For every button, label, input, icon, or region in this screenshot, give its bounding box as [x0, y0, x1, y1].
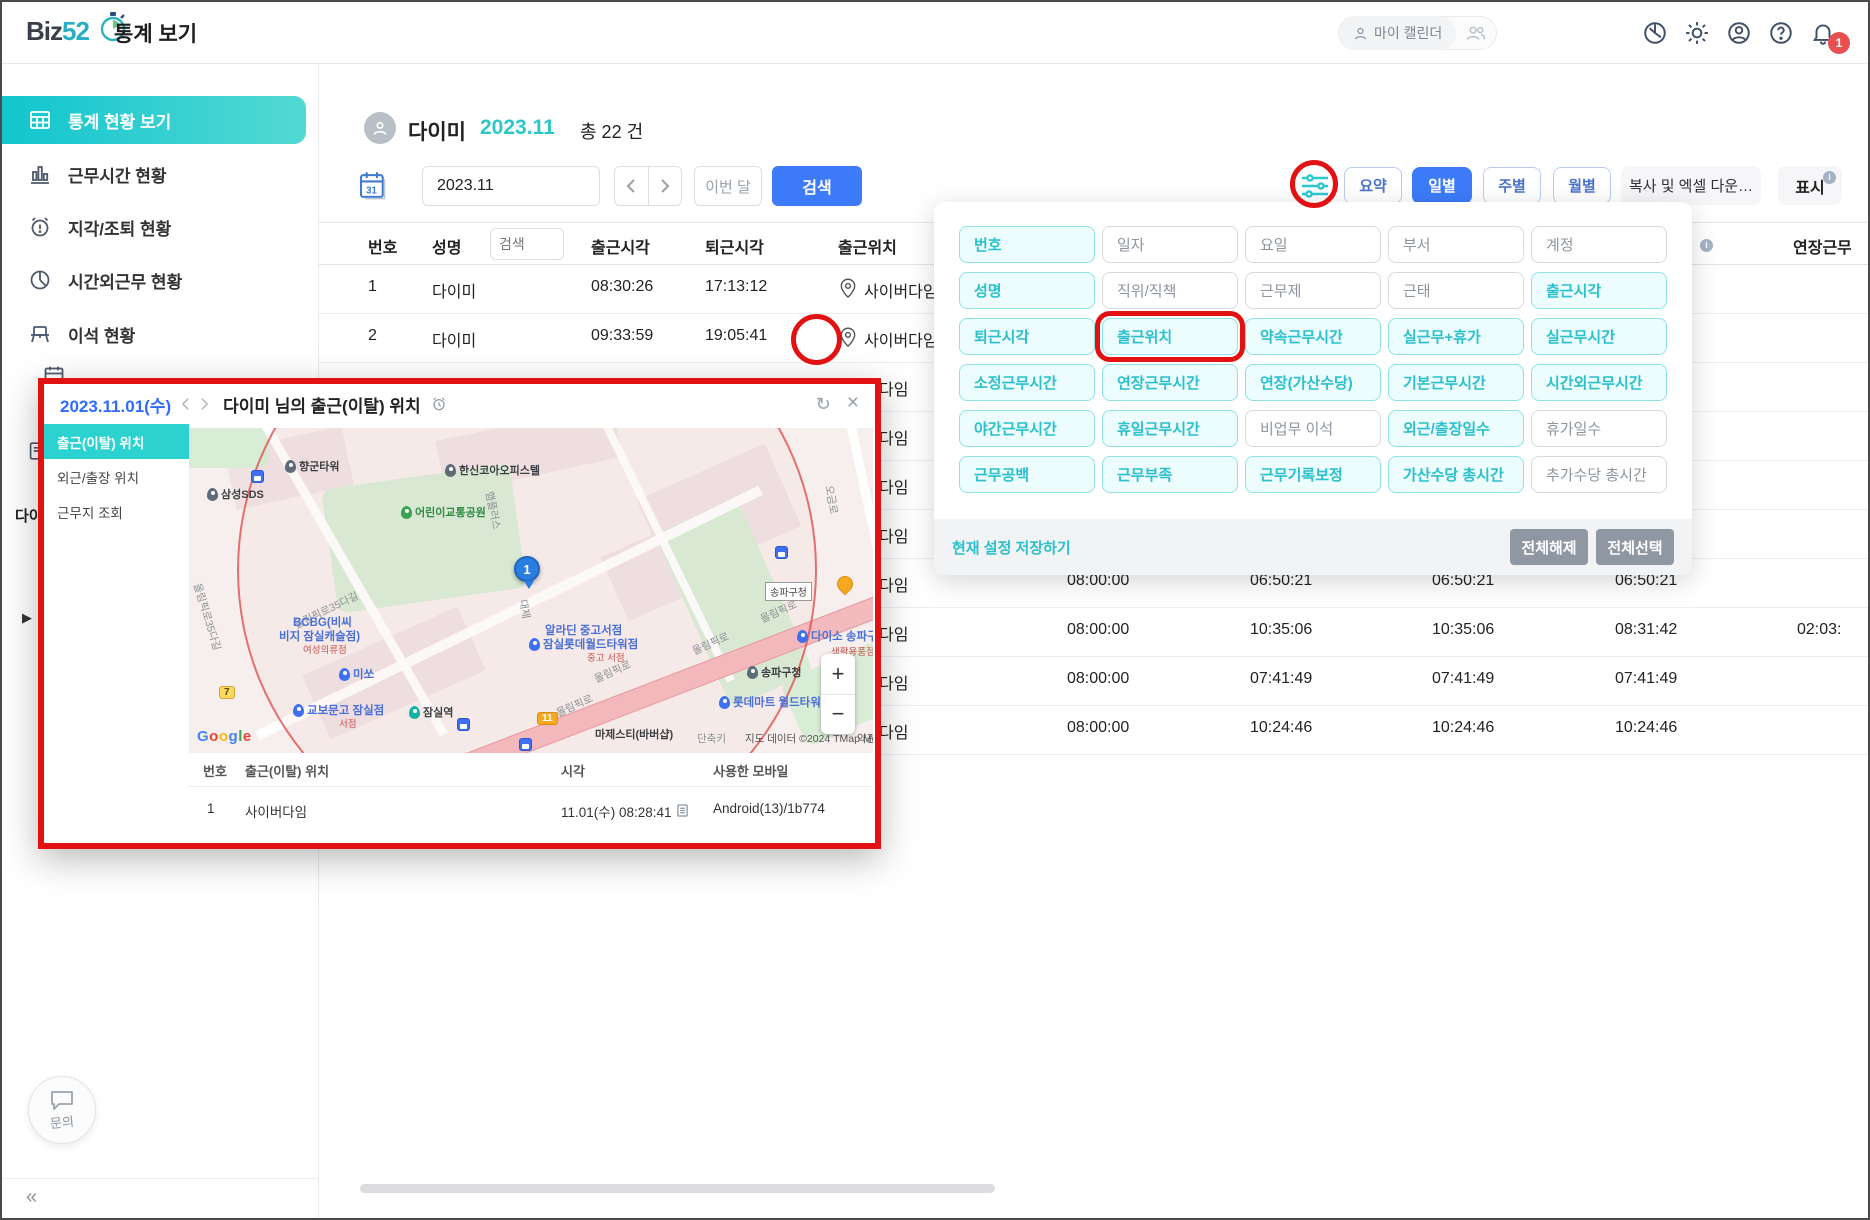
map-pin-icon: [445, 464, 456, 477]
name-search-input[interactable]: [490, 228, 564, 260]
filter-chip-22[interactable]: 비업무 이석: [1245, 410, 1381, 447]
cell-no: 2: [368, 327, 377, 345]
display-label: 표시: [1795, 180, 1824, 197]
filter-chip-7[interactable]: 근무제: [1245, 272, 1381, 309]
cell-in: 09:33:59: [591, 327, 653, 345]
popup-table: 번호 출근(이탈) 위치 시각 사용한 모바일 1 사이버다임 11.01(수)…: [189, 753, 873, 843]
map-pin-icon: [207, 488, 218, 501]
person-icon: [1353, 26, 1368, 41]
map-label: 다이소 송파구청점: [797, 628, 873, 644]
filter-panel-footer: 현재 설정 저장하기 전체해제 전체선택: [934, 519, 1692, 575]
cell-loc-fragment: 다임: [879, 523, 908, 547]
popup-tabs: 출근(이탈) 위치 외근/출장 위치 근무지 조회: [44, 424, 189, 529]
column-filter-panel: 번호일자요일부서계정성명직위/직책근무제근태출근시각퇴근시각출근위치약속근무시간…: [934, 202, 1692, 575]
filter-chip-grid: 번호일자요일부서계정성명직위/직책근무제근태출근시각퇴근시각출근위치약속근무시간…: [959, 226, 1667, 493]
clipboard-icon[interactable]: [677, 804, 688, 817]
p-col-device: 사용한 모바일: [713, 761, 788, 780]
close-icon[interactable]: ×: [847, 394, 859, 415]
sidebar-item-label: 근무시간 현황: [68, 162, 167, 187]
clipped-name-fragment: 다이: [15, 505, 37, 526]
header-info-icon: i: [1700, 239, 1713, 252]
stats-icon[interactable]: [1642, 20, 1668, 46]
filter-chip-29[interactable]: 추가수당 총시간: [1531, 456, 1667, 493]
sidebar-expander-arrow[interactable]: ▶: [22, 610, 32, 626]
cell-v4: 08:31:42: [1615, 621, 1677, 639]
map-label: 올림픽로35다길: [190, 581, 225, 652]
filter-chip-6[interactable]: 직위/직책: [1102, 272, 1238, 309]
logo-text: Biz: [26, 16, 62, 46]
map-label: 삼성SDS: [207, 486, 264, 502]
sidebar-item-label: 시간외근무 현황: [68, 268, 182, 293]
alarm-clock-icon: [28, 215, 52, 239]
sidebar-item-overtime[interactable]: 시간외근무 현황: [2, 258, 306, 302]
map-label: 송파구청: [765, 582, 812, 601]
map-label: 7: [219, 686, 235, 699]
user-avatar: [364, 112, 396, 144]
cell-v1: 08:00:00: [1067, 621, 1129, 639]
map-label: 롯데마트 월드타워점: [719, 694, 831, 710]
p-col-loc: 출근(이탈) 위치: [245, 761, 329, 780]
annotation-circle-pin: [791, 314, 842, 365]
cell-v3: 10:24:46: [1432, 719, 1494, 737]
map-label: 대제: [516, 598, 534, 620]
notification-badge: 1: [1828, 32, 1850, 54]
filter-chip-18[interactable]: 기본근무시간: [1388, 364, 1524, 401]
month-input[interactable]: [422, 166, 600, 206]
calendar-31-icon[interactable]: 31: [358, 170, 388, 202]
filter-chip-26[interactable]: 근무부족: [1102, 456, 1238, 493]
selected-period: 2023.11: [480, 116, 555, 140]
inquiry-label: 문의: [49, 1111, 75, 1132]
filter-chip-9[interactable]: 출근시각: [1531, 272, 1667, 309]
search-button[interactable]: 검색: [772, 166, 862, 206]
month-nav-group: [614, 166, 682, 206]
select-all-button[interactable]: 전체선택: [1596, 529, 1674, 565]
alarm-icon-small: [431, 396, 447, 412]
cell-name: 다이미: [432, 278, 476, 302]
p-row-time: 11.01(수) 08:28:41: [561, 801, 688, 821]
filter-chip-8[interactable]: 근태: [1388, 272, 1524, 309]
logo-number: 52: [62, 16, 89, 46]
display-button[interactable]: 표시i: [1778, 166, 1842, 205]
cell-loc-fragment: 다임: [879, 376, 908, 400]
popup-next-day-button[interactable]: [200, 397, 209, 411]
filter-chip-28[interactable]: 가산수당 총시간: [1388, 456, 1524, 493]
pie-chart-icon: [28, 268, 52, 292]
cell-loc-fragment: 다임: [879, 572, 908, 596]
cell-v1: 08:00:00: [1067, 670, 1129, 688]
cell-loc-fragment: 다임: [879, 719, 908, 743]
cell-v3: 07:41:49: [1432, 670, 1494, 688]
people-icon[interactable]: [1466, 25, 1486, 41]
table-icon: [28, 108, 52, 132]
filter-chip-11[interactable]: 출근위치: [1102, 318, 1238, 355]
filter-chip-5[interactable]: 성명: [959, 272, 1095, 309]
inquiry-button[interactable]: 문의: [28, 1076, 96, 1144]
chat-bubble-icon: [49, 1089, 75, 1111]
tab-field-location[interactable]: 외근/출장 위치: [44, 459, 189, 494]
filter-chip-2[interactable]: 요일: [1245, 226, 1381, 263]
col-no: 번호: [368, 234, 397, 258]
filter-chip-10[interactable]: 퇴근시각: [959, 318, 1095, 355]
cell-v2: 10:35:06: [1250, 621, 1312, 639]
deselect-all-button[interactable]: 전체해제: [1510, 529, 1588, 565]
cell-loc-fragment: 다임: [879, 670, 908, 694]
sidebar-item-statistics[interactable]: 통계 현황 보기: [2, 96, 306, 144]
map-pin-icon: [401, 506, 412, 519]
popup-prev-day-button[interactable]: [181, 397, 190, 411]
zoom-out-button[interactable]: −: [821, 695, 855, 735]
filter-chip-24[interactable]: 휴가일수: [1531, 410, 1667, 447]
zoom-in-button[interactable]: +: [821, 654, 855, 695]
map-canvas[interactable]: 향군타워삼성SDS한신코아오피스텔어린이교통공원햄플러스올림픽로35다길올림픽로…: [189, 428, 873, 753]
filter-chip-20[interactable]: 야간근무시간: [959, 410, 1095, 447]
filter-chip-23[interactable]: 외근/출장일수: [1388, 410, 1524, 447]
cell-v2: 10:24:46: [1250, 719, 1312, 737]
cell-loc-fragment: 다임: [879, 425, 908, 449]
location-pin-icon[interactable]: [838, 277, 858, 299]
prev-month-button[interactable]: [615, 167, 649, 205]
filter-chip-12[interactable]: 약속근무시간: [1245, 318, 1381, 355]
map-label: 11: [537, 712, 558, 725]
refresh-icon[interactable]: ↻: [816, 394, 831, 415]
map-shortcut-link[interactable]: 단축키: [697, 731, 726, 746]
topbar-icon-group: [1642, 20, 1836, 46]
view-daily-button[interactable]: 일별: [1412, 167, 1472, 204]
map-label: 서점: [339, 716, 356, 730]
settings-gear-icon[interactable]: [1684, 20, 1710, 46]
cell-no: 1: [368, 278, 377, 296]
copy-excel-button[interactable]: 복사 및 엑셀 다운…: [1621, 166, 1761, 205]
view-weekly-button[interactable]: 주별: [1483, 167, 1541, 204]
cell-v2: 07:41:49: [1250, 670, 1312, 688]
map-pin-icon: [797, 630, 808, 643]
sidebar-collapse-button[interactable]: «: [26, 1186, 37, 1209]
google-logo: Google: [197, 728, 252, 745]
map-transit-icon: [457, 718, 470, 731]
map-pin-icon: [719, 696, 730, 709]
map-label: 향군타워: [285, 458, 339, 474]
cell-out: 17:13:12: [705, 278, 767, 296]
help-icon[interactable]: [1768, 20, 1794, 46]
save-settings-link[interactable]: 현재 설정 저장하기: [952, 537, 1071, 558]
selected-user-name: 다이미: [408, 116, 466, 146]
this-month-button[interactable]: 이번 달: [694, 166, 762, 206]
filter-chip-3[interactable]: 부서: [1388, 226, 1524, 263]
tab-attendance-location[interactable]: 출근(이탈) 위치: [44, 424, 189, 459]
map-zoom-control: + −: [821, 654, 855, 734]
filter-chip-21[interactable]: 휴일근무시간: [1102, 410, 1238, 447]
map-pin-icon: [285, 460, 296, 473]
col-out: 퇴근시각: [705, 234, 764, 258]
my-calendar-button[interactable]: 마이 캘린더: [1339, 16, 1456, 50]
next-month-button[interactable]: [649, 167, 682, 205]
horizontal-scrollbar[interactable]: [360, 1184, 995, 1193]
popup-title: 다이미 님의 출근(이탈) 위치: [223, 392, 421, 417]
p-row-device: Android(13)/1b774: [713, 801, 825, 816]
account-icon[interactable]: [1726, 20, 1752, 46]
map-marker-1: 1: [514, 556, 540, 582]
view-monthly-button[interactable]: 월별: [1553, 167, 1611, 204]
sidebar-item-away[interactable]: 이석 현황: [2, 312, 306, 356]
cell-v3: 10:35:06: [1432, 621, 1494, 639]
col-overtime-clipped: 연장근무: [1793, 234, 1851, 258]
cell-v4: 10:24:46: [1615, 719, 1677, 737]
map-pin-icon: [293, 704, 304, 717]
info-icon: i: [1823, 171, 1836, 184]
map-transit-icon: [519, 738, 532, 751]
col-in: 출근시각: [591, 234, 650, 258]
annotation-circle-filter: [1290, 160, 1338, 208]
sidebar-item-worktime[interactable]: 근무시간 현황: [2, 152, 306, 196]
filter-chip-19[interactable]: 시간외근무시간: [1531, 364, 1667, 401]
map-label: 송파구청: [747, 664, 801, 680]
popup-date[interactable]: 2023.11.01(수): [60, 392, 171, 417]
sidebar-item-lateness[interactable]: 지각/조퇴 현황: [2, 205, 306, 249]
map-pin-icon: [339, 668, 350, 681]
col-name: 성명: [432, 234, 461, 258]
bar-chart-icon: [28, 162, 52, 186]
cell-loc: 사이버다임: [864, 327, 938, 351]
filter-chip-14[interactable]: 실근무시간: [1531, 318, 1667, 355]
filter-chip-0[interactable]: 번호: [959, 226, 1095, 263]
topbar: Biz52 통계 보기 마이 캘린더 1: [2, 2, 1870, 64]
app-screen: Biz52 통계 보기 마이 캘린더 1 통계 현황 보기: [0, 0, 1870, 1220]
map-transit-icon: [251, 470, 264, 483]
p-col-time: 시각: [561, 761, 585, 780]
filter-chip-17[interactable]: 연장(가산수당): [1245, 364, 1381, 401]
svg-text:31: 31: [366, 185, 377, 196]
tab-workplace-lookup[interactable]: 근무지 조회: [44, 494, 189, 529]
sidebar-item-label: 통계 현황 보기: [68, 108, 171, 133]
sidebar-divider: [2, 1178, 319, 1179]
map-label: 미쏘: [339, 666, 374, 682]
map-label: 어린이교통공원: [401, 504, 486, 520]
desk-icon: [28, 322, 52, 346]
total-count: 총 22 건: [580, 118, 643, 144]
page-title: 통계 보기: [114, 18, 197, 48]
p-col-no: 번호: [203, 761, 227, 780]
map-food-icon: [834, 573, 857, 596]
filter-chip-16[interactable]: 연장근무시간: [1102, 364, 1238, 401]
filter-chip-1[interactable]: 일자: [1102, 226, 1238, 263]
map-pin-icon: [529, 638, 540, 651]
map-label: 한신코아오피스텔: [445, 462, 540, 478]
map-pin-icon: [409, 706, 420, 719]
location-popup: 2023.11.01(수) 다이미 님의 출근(이탈) 위치 ↻ × 출근(이탈…: [38, 378, 881, 849]
filter-chip-4[interactable]: 계정: [1531, 226, 1667, 263]
cell-loc: 사이버다임: [864, 278, 938, 302]
cell-loc-fragment: 다임: [879, 621, 908, 645]
map-label: 잠실역: [409, 704, 453, 720]
view-summary-button[interactable]: 요약: [1344, 167, 1402, 204]
filter-chip-13[interactable]: 실근무+휴가: [1388, 318, 1524, 355]
p-row-loc: 사이버다임: [245, 801, 307, 821]
map-pin-icon: [747, 666, 758, 679]
filter-chip-27[interactable]: 근무기록보정: [1245, 456, 1381, 493]
sidebar-item-label: 이석 현황: [68, 322, 135, 347]
cell-loc-fragment: 다임: [879, 474, 908, 498]
filter-chip-25[interactable]: 근무공백: [959, 456, 1095, 493]
cell-in: 08:30:26: [591, 278, 653, 296]
cell-v1: 08:00:00: [1067, 719, 1129, 737]
my-calendar-label: 마이 캘린더: [1374, 23, 1442, 43]
map-terms-link[interactable]: 약관: [857, 731, 873, 746]
map-label: 오금로: [822, 484, 842, 515]
popup-header: 2023.11.01(수) 다이미 님의 출근(이탈) 위치 ↻ ×: [44, 384, 875, 424]
sidebar-item-label: 지각/조퇴 현황: [68, 215, 171, 240]
app-logo[interactable]: Biz52: [26, 16, 89, 47]
cell-out: 19:05:41: [705, 327, 767, 345]
cell-name: 다이미: [432, 327, 476, 351]
col-loc: 출근위치: [838, 234, 897, 258]
map-label: 마제스티(바버샵): [595, 726, 673, 742]
cell-v4: 07:41:49: [1615, 670, 1677, 688]
map-transit-icon: [775, 546, 788, 559]
map-label: 여성의류점: [303, 642, 347, 656]
p-row-no: 1: [207, 801, 215, 816]
cell-v5: 02:03:: [1797, 621, 1841, 639]
filter-chip-15[interactable]: 소정근무시간: [959, 364, 1095, 401]
my-calendar-chip[interactable]: 마이 캘린더: [1338, 16, 1497, 50]
